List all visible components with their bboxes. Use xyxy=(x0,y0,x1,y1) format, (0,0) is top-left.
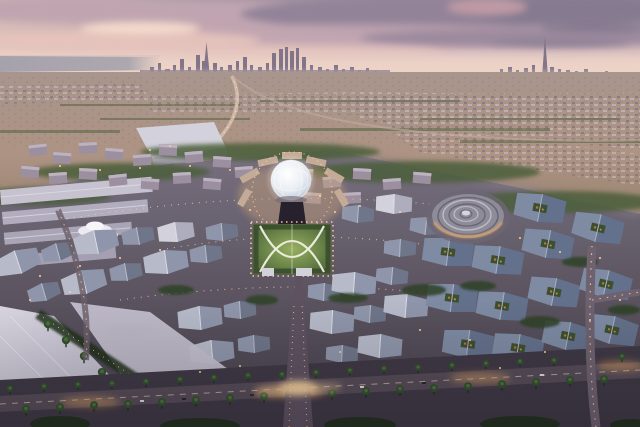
aerial-expo-site-photo xyxy=(0,0,640,427)
midrise-block xyxy=(203,178,222,191)
ringed-disc-pavilion xyxy=(426,190,510,244)
midrise-block xyxy=(49,172,68,184)
midrise-block xyxy=(383,178,402,190)
midrise-block xyxy=(353,168,372,180)
midrise-block xyxy=(213,156,232,168)
midrise-block xyxy=(173,172,192,184)
midrise-block xyxy=(105,148,124,161)
midrise-block xyxy=(79,142,98,154)
midrise-block xyxy=(413,172,432,185)
midrise-block xyxy=(141,178,160,190)
midrise-block xyxy=(185,151,204,164)
midrise-block xyxy=(79,168,98,180)
foreground-shade xyxy=(0,300,640,427)
midrise-block xyxy=(53,152,72,164)
scene-canvas xyxy=(0,0,640,427)
sea-strip xyxy=(0,55,160,72)
midrise-block xyxy=(133,154,152,166)
midrise-block xyxy=(21,166,40,179)
midrise-block xyxy=(159,144,178,156)
pavilion-roof xyxy=(376,193,413,214)
garden-square xyxy=(251,222,333,276)
midrise-block xyxy=(108,174,127,187)
midrise-block xyxy=(28,144,47,157)
